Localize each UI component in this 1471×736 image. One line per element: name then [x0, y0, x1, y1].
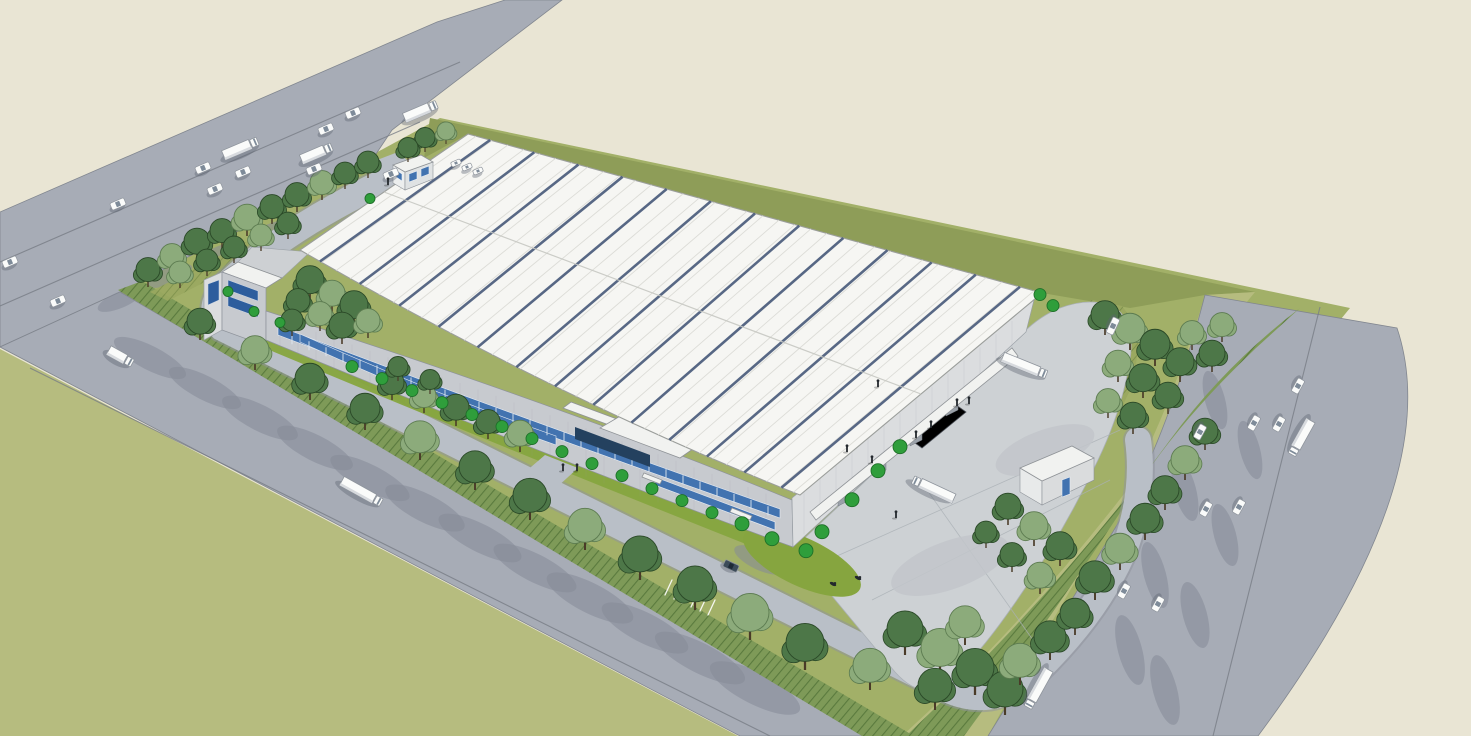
topiary-bush — [526, 433, 538, 445]
topiary-bush — [1047, 300, 1059, 312]
topiary-bush — [496, 421, 508, 433]
topiary-bush — [1034, 289, 1046, 301]
topiary-bush — [365, 194, 375, 204]
topiary-bush — [815, 525, 829, 539]
architectural-rendering — [0, 0, 1471, 736]
topiary-bush — [436, 397, 448, 409]
topiary-bush — [466, 409, 478, 421]
topiary-bush — [706, 507, 718, 519]
topiary-bush — [223, 287, 233, 297]
topiary-bush — [765, 532, 779, 546]
topiary-bush — [845, 493, 859, 507]
topiary-bush — [646, 483, 658, 495]
topiary-bush — [586, 458, 598, 470]
topiary-bush — [249, 307, 259, 317]
topiary-bush — [616, 470, 628, 482]
topiary-bush — [346, 361, 358, 373]
topiary-bush — [556, 446, 568, 458]
topiary-bush — [376, 373, 388, 385]
site-plan-rendering — [0, 0, 1471, 736]
topiary-bush — [893, 440, 907, 454]
topiary-bush — [735, 517, 749, 531]
utility-door — [1062, 477, 1070, 497]
topiary-bush — [871, 464, 885, 478]
topiary-bush — [799, 544, 813, 558]
topiary-bush — [676, 495, 688, 507]
topiary-bush — [406, 385, 418, 397]
topiary-bush — [275, 318, 285, 328]
